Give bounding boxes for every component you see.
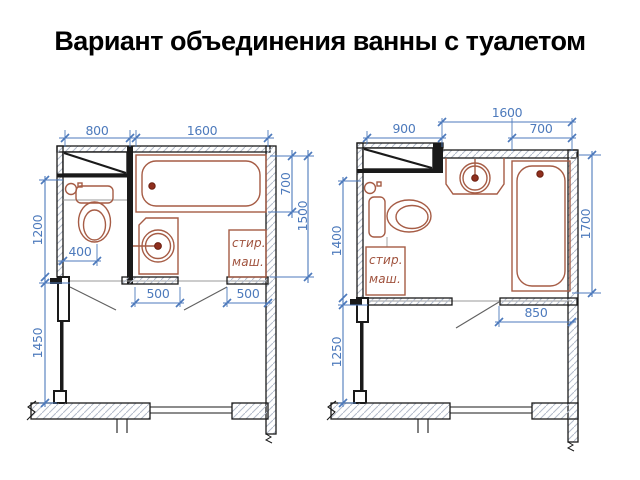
dim-1450: 1450 [30,327,45,358]
floorplan-page: Вариант объединения ванны с туалетом [0,0,640,480]
dim-900: 900 [393,121,416,136]
dim-400: 400 [69,244,92,259]
wall-break [568,442,574,451]
washer-label-1: стир. [232,236,266,250]
wall-partition [127,146,133,284]
bathtub [512,161,570,291]
washer-label-2: маш. [232,255,264,269]
dim-850: 850 [525,305,548,320]
faucet-dot [155,243,162,250]
wall-top-right [435,150,577,158]
floorplan-drawing: стир. маш. 800 1600 [0,0,640,480]
wall-top [57,146,270,152]
wall-right [266,146,276,434]
wall-break [266,434,272,443]
door-swing-bath [184,287,227,310]
door-swing-toilet [70,287,116,310]
wall-bottom-seg-a [122,277,178,284]
wall-top-left [357,143,443,148]
hall-pier-bottom [354,391,366,403]
washer-label-2: маш. [369,272,401,286]
wall-bottom-seg-a [357,298,452,305]
corner-sink [365,182,382,194]
dim-700: 700 [278,172,293,195]
dim-1500: 1500 [295,200,310,231]
washing-machine: стир. маш. [229,230,266,277]
sink [133,218,178,274]
wall-bottom-band-right [532,403,578,419]
vent-shaft [357,148,443,171]
dim-1600: 1600 [187,123,218,138]
tub-drain [537,171,543,177]
dim-1600: 1600 [492,105,523,120]
wall-left [357,143,363,305]
hall-pier-bottom [54,391,66,403]
dim-1700: 1700 [578,208,593,239]
dim-500b: 500 [237,286,260,301]
vent-shaft [57,152,133,176]
tub-drain [149,183,155,189]
dim-500a: 500 [147,286,170,301]
faucet-dot [472,175,479,182]
plan-left: стир. маш. 800 1600 [27,123,314,443]
washer-label-1: стир. [369,253,403,267]
dim-1200: 1200 [30,214,45,245]
wall-bottom-seg-b [227,277,268,284]
plan-right: стир. маш. 1600 900 [327,105,601,451]
hall-wall-left [60,321,64,392]
wall-bottom-band-right [232,403,268,419]
wall-bottom-band-left [331,403,450,419]
wall-bottom-seg-b [500,298,577,305]
sink [446,158,504,194]
dim-1400: 1400 [329,225,344,256]
dim-800: 800 [86,123,109,138]
door-swing-bath [456,302,499,328]
bathtub [136,155,266,212]
hall-wall-left [360,322,364,392]
wall-left [57,146,63,277]
dim-700: 700 [530,121,553,136]
corner-sink [66,183,83,195]
pier-arm [350,299,362,305]
wall-bottom-band-left [31,403,150,419]
toilet [369,197,431,237]
washing-machine: стир. маш. [366,237,405,295]
dim-1250: 1250 [329,336,344,367]
wall-junction [433,143,443,173]
